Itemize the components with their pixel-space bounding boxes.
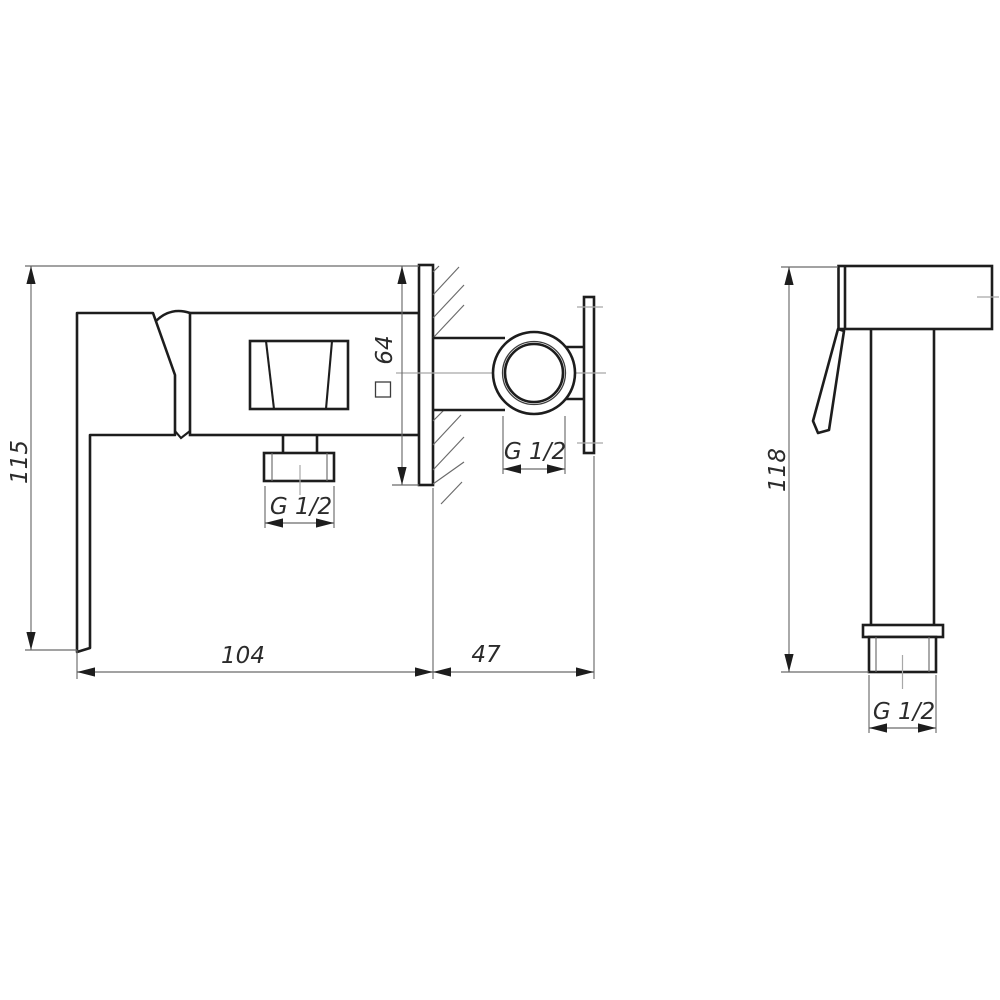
mixer-side-view: 115 64 104 47 G 1/2 G 1/2	[7, 265, 606, 679]
inlet-thread-label: G 1/2	[504, 439, 566, 465]
dimension-label-47: 47	[471, 642, 501, 668]
handle-pivot-arc	[156, 311, 190, 321]
drawing-canvas: 115 64 104 47 G 1/2 G 1/2	[0, 0, 1000, 1000]
technical-drawing: 115 64 104 47 G 1/2 G 1/2	[0, 0, 1000, 1000]
shower-trigger	[813, 329, 844, 433]
wall-hatching	[433, 266, 464, 504]
handle-body-notch	[175, 431, 190, 438]
mounting-plate	[584, 297, 594, 453]
shower-height-label: 118	[765, 448, 791, 492]
shower-head	[839, 266, 993, 329]
dimension-label-115: 115	[7, 440, 33, 484]
outlet-nut	[264, 453, 334, 481]
wall-flange-plate	[419, 265, 433, 485]
outlet-thread-label: G 1/2	[270, 494, 332, 520]
mixer-handle	[77, 313, 175, 652]
dimension-label-104: 104	[221, 643, 265, 669]
shower-flange	[863, 625, 943, 637]
dimension-label-64: 64	[372, 335, 398, 364]
shower-thread-label: G 1/2	[873, 699, 935, 725]
cartridge-window	[250, 341, 348, 409]
hand-shower-view: 118 G 1/2	[765, 266, 999, 733]
